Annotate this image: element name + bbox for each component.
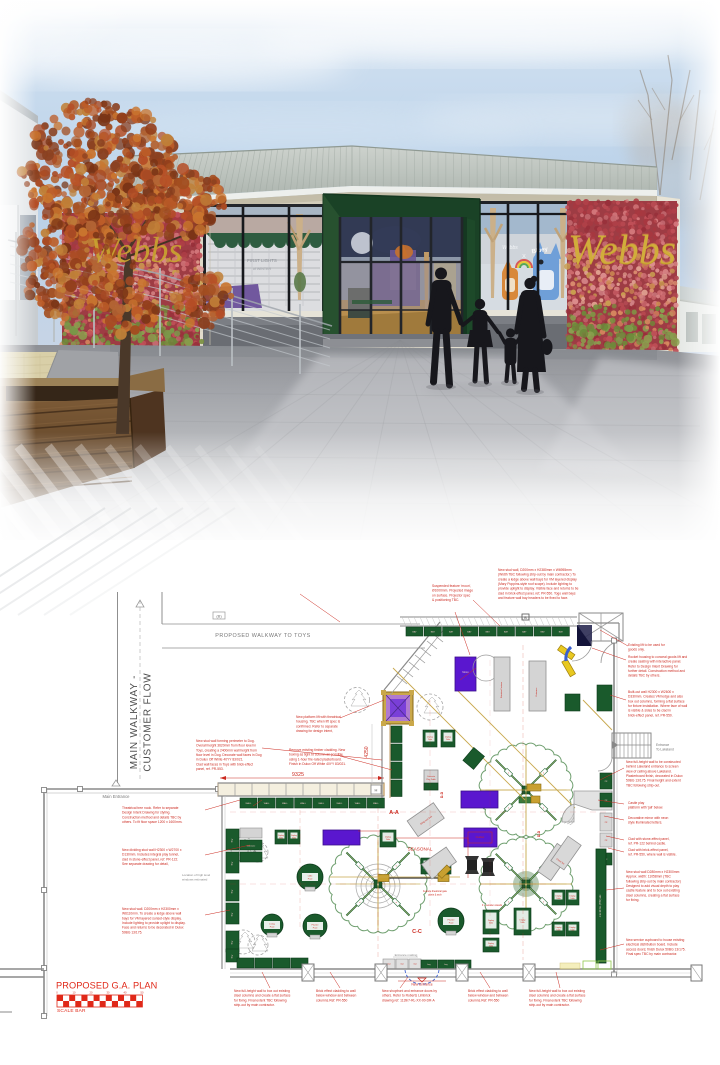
svg-text:New stud wall forming perimete: New stud wall forming perimeter to Dog. [196,739,255,743]
svg-text:Table: Table [556,898,560,900]
svg-text:D130mm. Includes integral play: D130mm. Includes integral play tunnel, [122,853,179,857]
svg-text:brick-effect panel, ref. PR-55: brick-effect panel, ref. PR-550. [628,713,673,717]
svg-text:panel, ref. PR-553.: panel, ref. PR-553. [196,767,224,771]
svg-text:Decorative mirror with neon: Decorative mirror with neon [628,816,668,820]
svg-text:electrical distribution board.: electrical distribution board. Include [626,943,678,947]
svg-text:TBC following strip-out.: TBC following strip-out. [626,783,660,787]
svg-text:castle feature and to box out: castle feature and to box out existing [626,889,680,893]
svg-text:Table: Table [489,946,493,948]
svg-text:BAY: BAY [467,631,472,634]
svg-text:Rotation Feature: Rotation Feature [500,681,503,698]
svg-text:Main Entrance: Main Entrance [103,794,131,799]
svg-text:CUSTOMER FLOW: CUSTOMER FLOW [143,672,154,771]
svg-text:SCALE BAR: SCALE BAR [57,1008,86,1014]
svg-text:Remove existing timber claddin: Remove existing timber cladding. New [289,748,346,752]
svg-text:Entrance: Entrance [656,743,669,747]
svg-text:Design Intent Drawing for styl: Design Intent Drawing for styling. [122,811,170,815]
svg-text:Finish in Dulux Off White 40YY: Finish in Dulux Off White 40YY 83/021. [289,762,346,766]
svg-text:4250: 4250 [364,746,370,757]
svg-text:for fixing. Final extent TBC f: for fixing. Final extent TBC following [529,998,582,1002]
svg-text:New full-height wall to box ou: New full-height wall to box out existing [234,989,290,993]
svg-text:style illuminated letters.: style illuminated letters. [628,821,662,825]
svg-text:Overall height 3620mm from flo: Overall height 3620mm from floor level i… [196,744,256,748]
svg-text:boxing as tight to column as p: boxing as tight to column as possible [289,753,343,757]
svg-text:New service cupboard to house: New service cupboard to house existing [626,938,684,942]
svg-text:BAY: BAY [504,631,509,634]
svg-text:using 1-hour fire-rated plaste: using 1-hour fire-rated plasterboard. [289,757,342,761]
svg-text:Planter: Planter [448,919,455,922]
svg-text:below window and between: below window and between [316,994,356,998]
svg-text:BAY: BAY [540,631,545,634]
svg-text:Bay: Bay [232,890,234,893]
svg-text:housing. TBC when lift spec is: housing. TBC when lift spec is [296,720,340,724]
svg-text:create seating with interactiv: create seating with interactive panel. [628,660,681,664]
svg-text:Milestone: Milestone [247,845,256,848]
svg-text:mat: mat [387,963,391,966]
svg-text:PROPOSED WALKWAY TO TOYS: PROPOSED WALKWAY TO TOYS [215,633,310,639]
svg-text:X: X [522,254,526,260]
svg-text:Face and returns to be decorat: Face and returns to be decorated in Dulu… [122,926,184,930]
svg-text:50: 50 [141,991,144,995]
svg-text:Webbs: Webbs [502,245,518,251]
svg-text:1 to 16 No. (TBC) etc: 1 to 16 No. (TBC) etc [599,894,602,917]
svg-text:Ø1000mm. Projected image: Ø1000mm. Projected image [432,589,473,593]
svg-text:Concrete: Concrete [427,775,436,778]
svg-text:Table: Table [570,930,574,932]
svg-text:details TBC by others.: details TBC by others. [628,674,660,678]
svg-text:D330mm. Creates VM ledge and a: D330mm. Creates VM ledge and also [628,695,683,699]
svg-text:Include lighting to provide up: Include lighting to provide uplight to d… [122,921,186,925]
svg-text:bays for VM layered sunset-sty: bays for VM layered sunset-style display… [122,916,182,920]
svg-text:Outdoor: Outdoor [476,836,485,839]
svg-text:columns.Ref: PR-550: columns.Ref: PR-550 [316,998,347,1002]
svg-text:MAIN WALKWAY -: MAIN WALKWAY - [129,675,140,770]
svg-text:10: 10 [73,991,76,995]
svg-text:New stud wall, D200mm x H2380m: New stud wall, D200mm x H2380mm x W6955m… [498,568,572,572]
svg-text:strip-out by main contractor.: strip-out by main contractor. [529,1003,570,1007]
svg-text:WALL: WALL [373,802,380,805]
svg-text:BAY: BAY [486,631,491,634]
svg-text:access doors; finish Dulux 50B: access doors; finish Dulux 50BG 13/175. [626,947,686,951]
svg-text:D-D: D-D [537,830,541,837]
svg-text:following strip-out by main co: following strip-out by main contractor) [626,879,681,883]
svg-text:New dividing stud wall H2300 x: New dividing stud wall H2300 x W2700 x [122,848,182,852]
svg-text:WALL: WALL [282,802,289,805]
svg-text:New platform lift with theatri: New platform lift with theatrical [296,715,341,719]
svg-text:behind Lakeland entrance to sc: behind Lakeland entrance to screen [626,765,679,769]
svg-text:columns.Ref: PR-550: columns.Ref: PR-550 [468,998,499,1002]
svg-text:bay: bay [427,964,430,966]
svg-text:Table: Table [520,922,524,924]
svg-text:below window and between: below window and between [468,994,508,998]
svg-text:windows estimated: windows estimated [182,877,208,881]
svg-text:SEASONAL: SEASONAL [408,847,433,852]
svg-text:40: 40 [124,991,127,995]
svg-text:New full-height wall to be con: New full-height wall to be constructed [626,760,681,764]
svg-text:Table: Table [570,898,574,900]
svg-text:Clad wall faces in Toys with b: Clad wall faces in Toys with brick-effec… [196,762,253,766]
svg-text:Brick effect cladding to wall: Brick effect cladding to wall [316,989,356,993]
svg-text:20: 20 [90,991,93,995]
svg-text:on surface. Projector spec: on surface. Projector spec [432,593,471,597]
svg-text:Table: Table [446,739,450,741]
svg-text:To Lakeland: To Lakeland [656,748,674,752]
svg-text:floor level in Dog. Decorate w: floor level in Dog. Decorate wall faces … [196,753,262,757]
svg-text:create a ledge above wall bays: create a ledge above wall bays for VM la… [498,577,577,581]
svg-text:New stud wall. D200mm x H2300m: New stud wall. D200mm x H2300mm x [122,907,179,911]
svg-text:bay: bay [444,964,447,966]
svg-text:Table: Table [556,930,560,932]
svg-text:FIRST LIGHTS: FIRST LIGHTS [247,258,277,263]
svg-text:BAY: BAY [522,631,527,634]
svg-text:drawing ref: 1139/7-RL-XX-00-D: drawing ref: 1139/7-RL-XX-00-DR-A [382,998,436,1002]
svg-text:New Entrance: New Entrance [411,983,432,987]
svg-text:box out columns, forming a fla: box out columns, forming a flat surface [628,699,685,703]
svg-text:Pool: Pool [313,928,318,930]
svg-text:strip-out by main contractor.: strip-out by main contractor. [234,1003,275,1007]
svg-text:F + wooden stands: F + wooden stands [482,904,503,907]
svg-text:Bay: Bay [232,862,234,865]
svg-text:ref. PR-550, where wall is vis: ref. PR-550, where wall is visible. [628,853,677,857]
svg-text:See separate drawing for detai: See separate drawing for detail, [122,862,169,866]
svg-text:steel columns and create a fla: steel columns and create a flat surface [529,994,586,998]
svg-text:50BG 13/175.: 50BG 13/175. [122,930,142,934]
svg-text:Table: Table [386,839,390,841]
svg-text:clad in stone-effect panel, re: clad in stone-effect panel, ref: PR-122. [122,857,178,861]
svg-text:WALL: WALL [318,802,325,805]
svg-text:Webbs: Webbs [568,227,676,273]
svg-text:of WINTER: of WINTER [253,267,272,271]
svg-text:Theatrical tree nook. Refer to: Theatrical tree nook. Refer to separate [122,806,179,810]
svg-text:WALL: WALL [264,802,271,805]
svg-text:confirmed. Refer to separate: confirmed. Refer to separate [296,724,338,728]
svg-text:WALL: WALL [337,802,344,805]
svg-text:posts & arch: posts & arch [428,894,442,897]
svg-text:and feature wall bay headers t: and feature wall bay headers to be fixed… [498,596,568,600]
svg-text:Pool: Pool [449,923,454,925]
svg-text:& positioning TBC.: & positioning TBC. [432,598,459,602]
svg-text:Living: Living [269,924,275,926]
svg-text:is visible & sides to be clad: is visible & sides to be clad in [628,709,671,713]
svg-text:WALL: WALL [246,802,253,805]
svg-text:Bay: Bay [232,955,234,958]
svg-text:0: 0 [56,991,58,995]
svg-text:New full-height wall to box ou: New full-height wall to box out existing [529,989,585,993]
svg-text:in Dulux Off White 40YY 83/021: in Dulux Off White 40YY 83/021. [196,758,243,762]
svg-text:Planter: Planter [312,924,319,927]
svg-text:Pool: Pool [270,927,275,929]
svg-text:Pool: Pool [308,879,313,881]
svg-text:BAY: BAY [449,631,454,634]
svg-text:A-A: A-A [389,810,399,816]
svg-text:drawing for design intent,: drawing for design intent, [296,729,333,733]
svg-text:WALL: WALL [300,802,307,805]
svg-text:BAY: BAY [412,631,417,634]
svg-text:Designed to add visual depth t: Designed to add visual depth to play [626,884,680,888]
svg-text:Existing lift to be used for: Existing lift to be used for [628,643,666,647]
svg-text:D-D: D-D [440,791,444,798]
svg-text:view of ceiling above Lakeland: view of ceiling above Lakeland. [626,769,672,773]
svg-text:H: H [375,788,378,793]
svg-text:Construction method and detail: Construction method and details TBC by [122,815,181,819]
svg-text:for fixing. Final extent TBC f: for fixing. Final extent TBC following [234,998,287,1002]
svg-text:Castle play: Castle play [628,801,645,805]
svg-text:provide uplight to display. Vi: provide uplight to display. Visible face… [498,587,579,591]
svg-text:Rocket housing to conceal good: Rocket housing to conceal goods lift and [628,655,687,659]
svg-text:Table: Table [489,923,493,925]
svg-text:steel columns and create a fla: steel columns and create a flat surface [234,994,291,998]
svg-text:Play Table: Play Table [426,779,436,781]
svg-text:for fixing.: for fixing. [626,898,639,902]
svg-text:9325: 9325 [292,772,304,778]
svg-text:Entrance: Entrance [535,687,538,697]
svg-text:New shopfront and entrance doo: New shopfront and entrance doors by [382,989,437,993]
svg-text:New stud wall D280mm x H2300mm: New stud wall D280mm x H2300mm [626,870,680,874]
svg-text:Clad with brick-effect panel,: Clad with brick-effect panel, [628,848,669,852]
svg-text:others. To fit floor space 120: others. To fit floor space 1200 x 1600mm… [122,820,182,824]
svg-text:BAY: BAY [431,631,436,634]
svg-text:W6110mm. To create a ledge abo: W6110mm. To create a ledge above wall [122,912,182,916]
svg-text:Plasterboard finish, decorated: Plasterboard finish, decorated in Dulux [626,774,683,778]
svg-text:Bay: Bay [232,913,234,916]
svg-text:mat: mat [400,963,404,966]
svg-text:steel columns, creating a flat: steel columns, creating a flat surface [626,893,680,897]
svg-text:platform with 'jail' below.: platform with 'jail' below. [628,806,663,810]
svg-text:Table: Table [292,838,296,840]
svg-text:Final spec TBC by main contrac: Final spec TBC by main contractor. [626,952,677,956]
svg-text:for fixture installation. Wher: for fixture installation. Where face of … [628,704,687,708]
svg-text:PROPOSED G.A. PLAN: PROPOSED G.A. PLAN [56,981,157,991]
svg-text:others. Refer to Roberts Limbr: others. Refer to Roberts Limbrick [382,994,431,998]
svg-text:C-C: C-C [412,929,422,935]
svg-text:clad in brick-effect panel, re: clad in brick-effect panel, ref; PR-550.… [498,591,576,595]
svg-text:Suspended feature 'moon',: Suspended feature 'moon', [432,584,471,588]
svg-text:further detail. Construction m: further detail. Construction method and [628,669,685,673]
svg-text:30: 30 [107,991,110,995]
svg-text:BAY: BAY [559,631,564,634]
svg-text:WALL: WALL [355,802,362,805]
svg-text:(Width TBC following strip-out: (Width TBC following strip-out by main c… [498,573,576,577]
svg-text:mat: mat [413,963,417,966]
svg-text:(B): (B) [216,614,222,619]
svg-text:Brick effect cladding to wall: Brick effect cladding to wall [468,989,508,993]
svg-text:Entrance matting: Entrance matting [395,953,418,957]
svg-text:Built-out wall H2300 x W2600 x: Built-out wall H2300 x W2600 x [628,690,674,694]
svg-text:Table: Table [279,838,283,840]
svg-text:50BG 13/175. Final height and: 50BG 13/175. Final height and extent [626,779,681,783]
svg-text:ref. PR-122 behind castle.: ref. PR-122 behind castle. [628,842,666,846]
svg-text:Approx. width: 11058mm (TBC: Approx. width: 11058mm (TBC [626,875,671,879]
svg-text:Clad with stone-effect panel,: Clad with stone-effect panel, [628,837,670,841]
svg-text:Little: Little [308,875,313,878]
svg-text:Refer to Design Intent Drawing: Refer to Design Intent Drawing for [628,664,679,668]
svg-text:Bay: Bay [232,941,234,944]
svg-text:Toys, creating a 2400mm wall h: Toys, creating a 2400mm wall height from [196,748,257,752]
svg-text:goods only.: goods only. [628,648,645,652]
svg-text:(Mary Poppins-style roof scape: (Mary Poppins-style roof scape). Include… [498,582,572,586]
svg-text:Bay: Bay [232,839,234,842]
